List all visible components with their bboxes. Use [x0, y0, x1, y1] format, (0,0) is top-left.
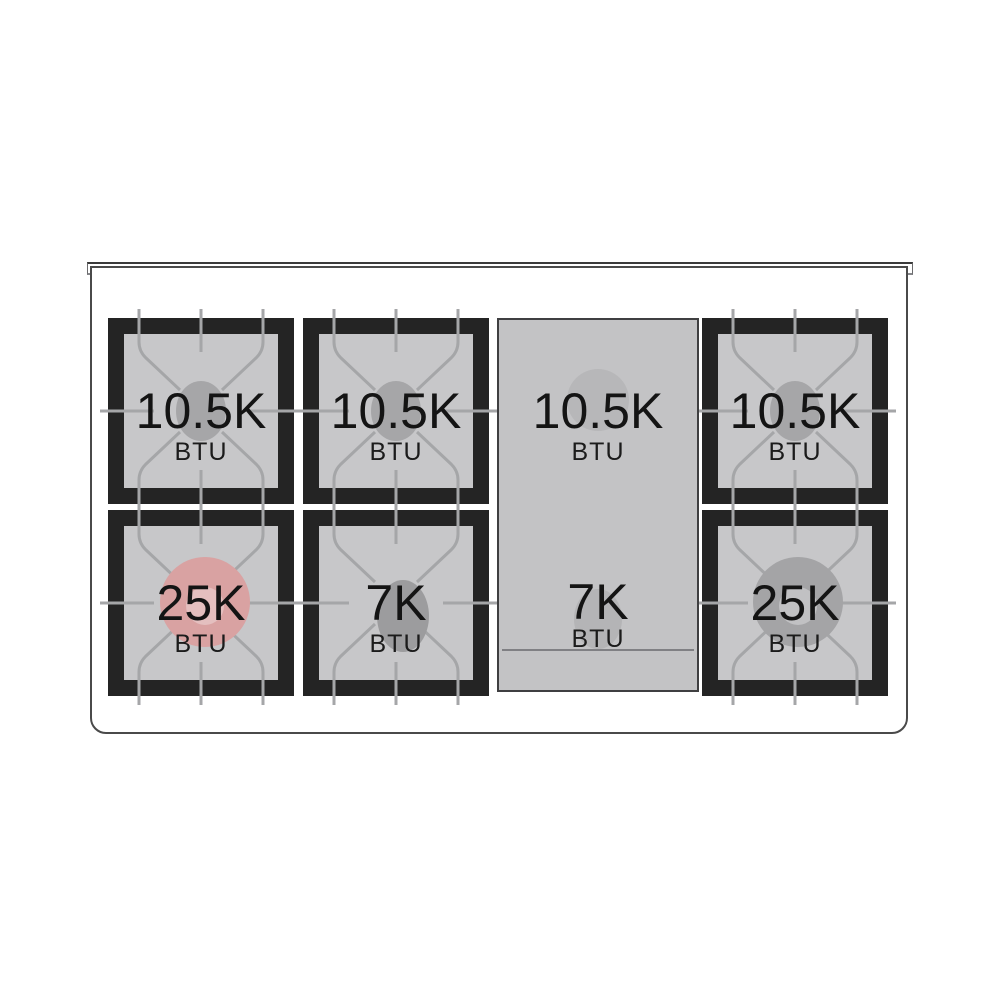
griddle-top-unit-label: BTU [497, 438, 699, 466]
burner-top-center: 10.5K BTU [303, 318, 489, 504]
burner-power-label: 25K [108, 576, 294, 630]
burner-unit-label: BTU [303, 438, 489, 466]
burner-unit-label: BTU [108, 630, 294, 658]
burner-power-label: 10.5K [303, 384, 489, 438]
burner-bottom-right: 25K BTU [702, 510, 888, 696]
griddle-top-power-label: 10.5K [497, 384, 699, 438]
burner-power-label: 10.5K [108, 384, 294, 438]
burner-unit-label: BTU [702, 438, 888, 466]
burner-power-label: 7K [303, 576, 489, 630]
range-cooktop-diagram: 10.5K BTU 10.5K BTU 10.5K BTU 25K BTU 7K… [0, 0, 1000, 1000]
burner-top-left: 10.5K BTU [108, 318, 294, 504]
griddle-bottom-power-label: 7K [497, 575, 699, 629]
griddle-bottom-unit-label: BTU [497, 625, 699, 653]
burner-unit-label: BTU [108, 438, 294, 466]
burner-bottom-left: 25K BTU [108, 510, 294, 696]
burner-bottom-center: 7K BTU [303, 510, 489, 696]
burner-power-label: 10.5K [702, 384, 888, 438]
burner-top-right: 10.5K BTU [702, 318, 888, 504]
burner-unit-label: BTU [303, 630, 489, 658]
griddle-plate: 10.5K BTU 7K BTU [497, 318, 699, 692]
burner-unit-label: BTU [702, 630, 888, 658]
burner-power-label: 25K [702, 576, 888, 630]
